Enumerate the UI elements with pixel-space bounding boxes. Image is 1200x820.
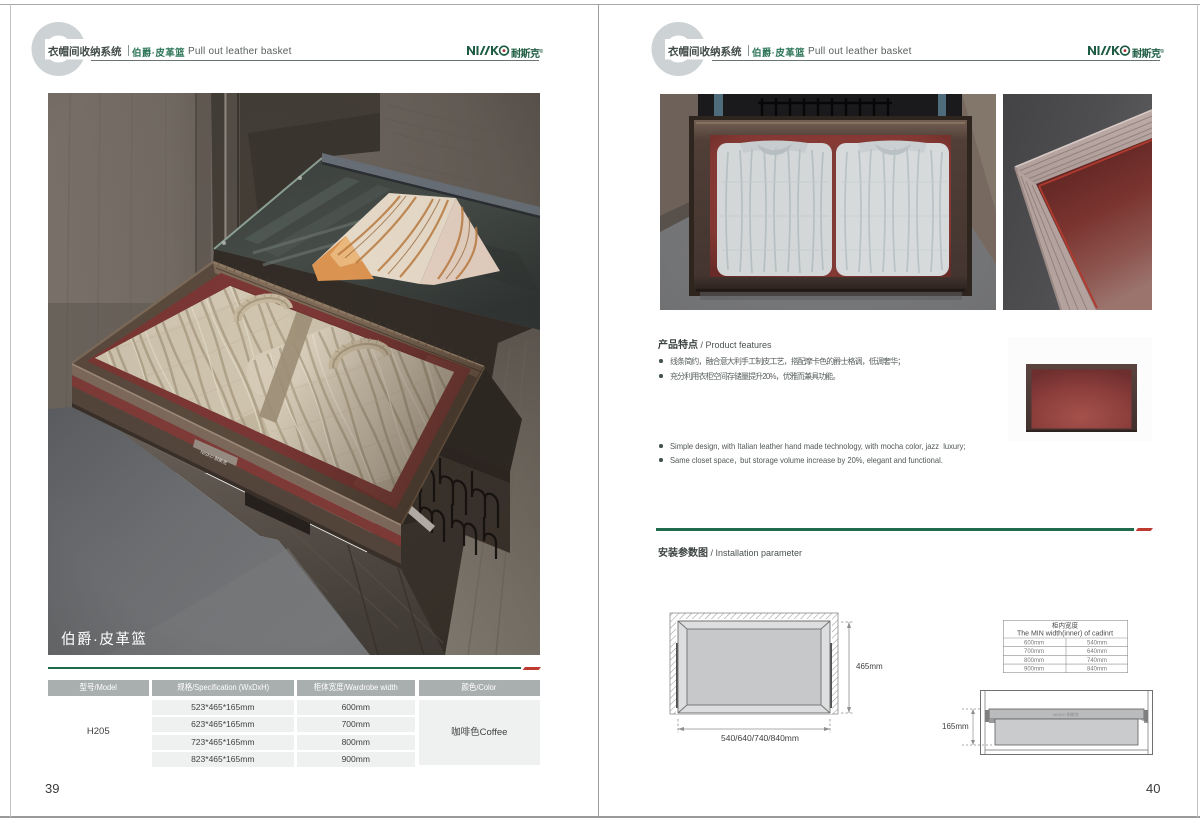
svg-text:The MIN width(inner) of cadinr: The MIN width(inner) of cadinrt <box>1017 631 1113 638</box>
svg-text:800mm: 800mm <box>1024 658 1044 664</box>
svg-text:540mm: 540mm <box>1087 640 1107 646</box>
svg-text:165mm: 165mm <box>942 722 969 731</box>
svg-text:465mm: 465mm <box>856 662 883 671</box>
svg-text:840mm: 840mm <box>1087 667 1107 673</box>
svg-text:柜内宽度: 柜内宽度 <box>1052 621 1079 630</box>
svg-text:600mm: 600mm <box>1024 640 1044 646</box>
svg-text:NISKO 耐斯克: NISKO 耐斯克 <box>1053 711 1079 717</box>
svg-text:740mm: 740mm <box>1087 658 1107 664</box>
svg-text:900mm: 900mm <box>1024 667 1044 673</box>
svg-text:伯爵·皮革篮: 伯爵·皮革篮 <box>61 630 147 648</box>
svg-text:700mm: 700mm <box>1024 649 1044 655</box>
svg-text:540/640/740/840mm: 540/640/740/840mm <box>721 733 799 743</box>
svg-text:640mm: 640mm <box>1087 649 1107 655</box>
